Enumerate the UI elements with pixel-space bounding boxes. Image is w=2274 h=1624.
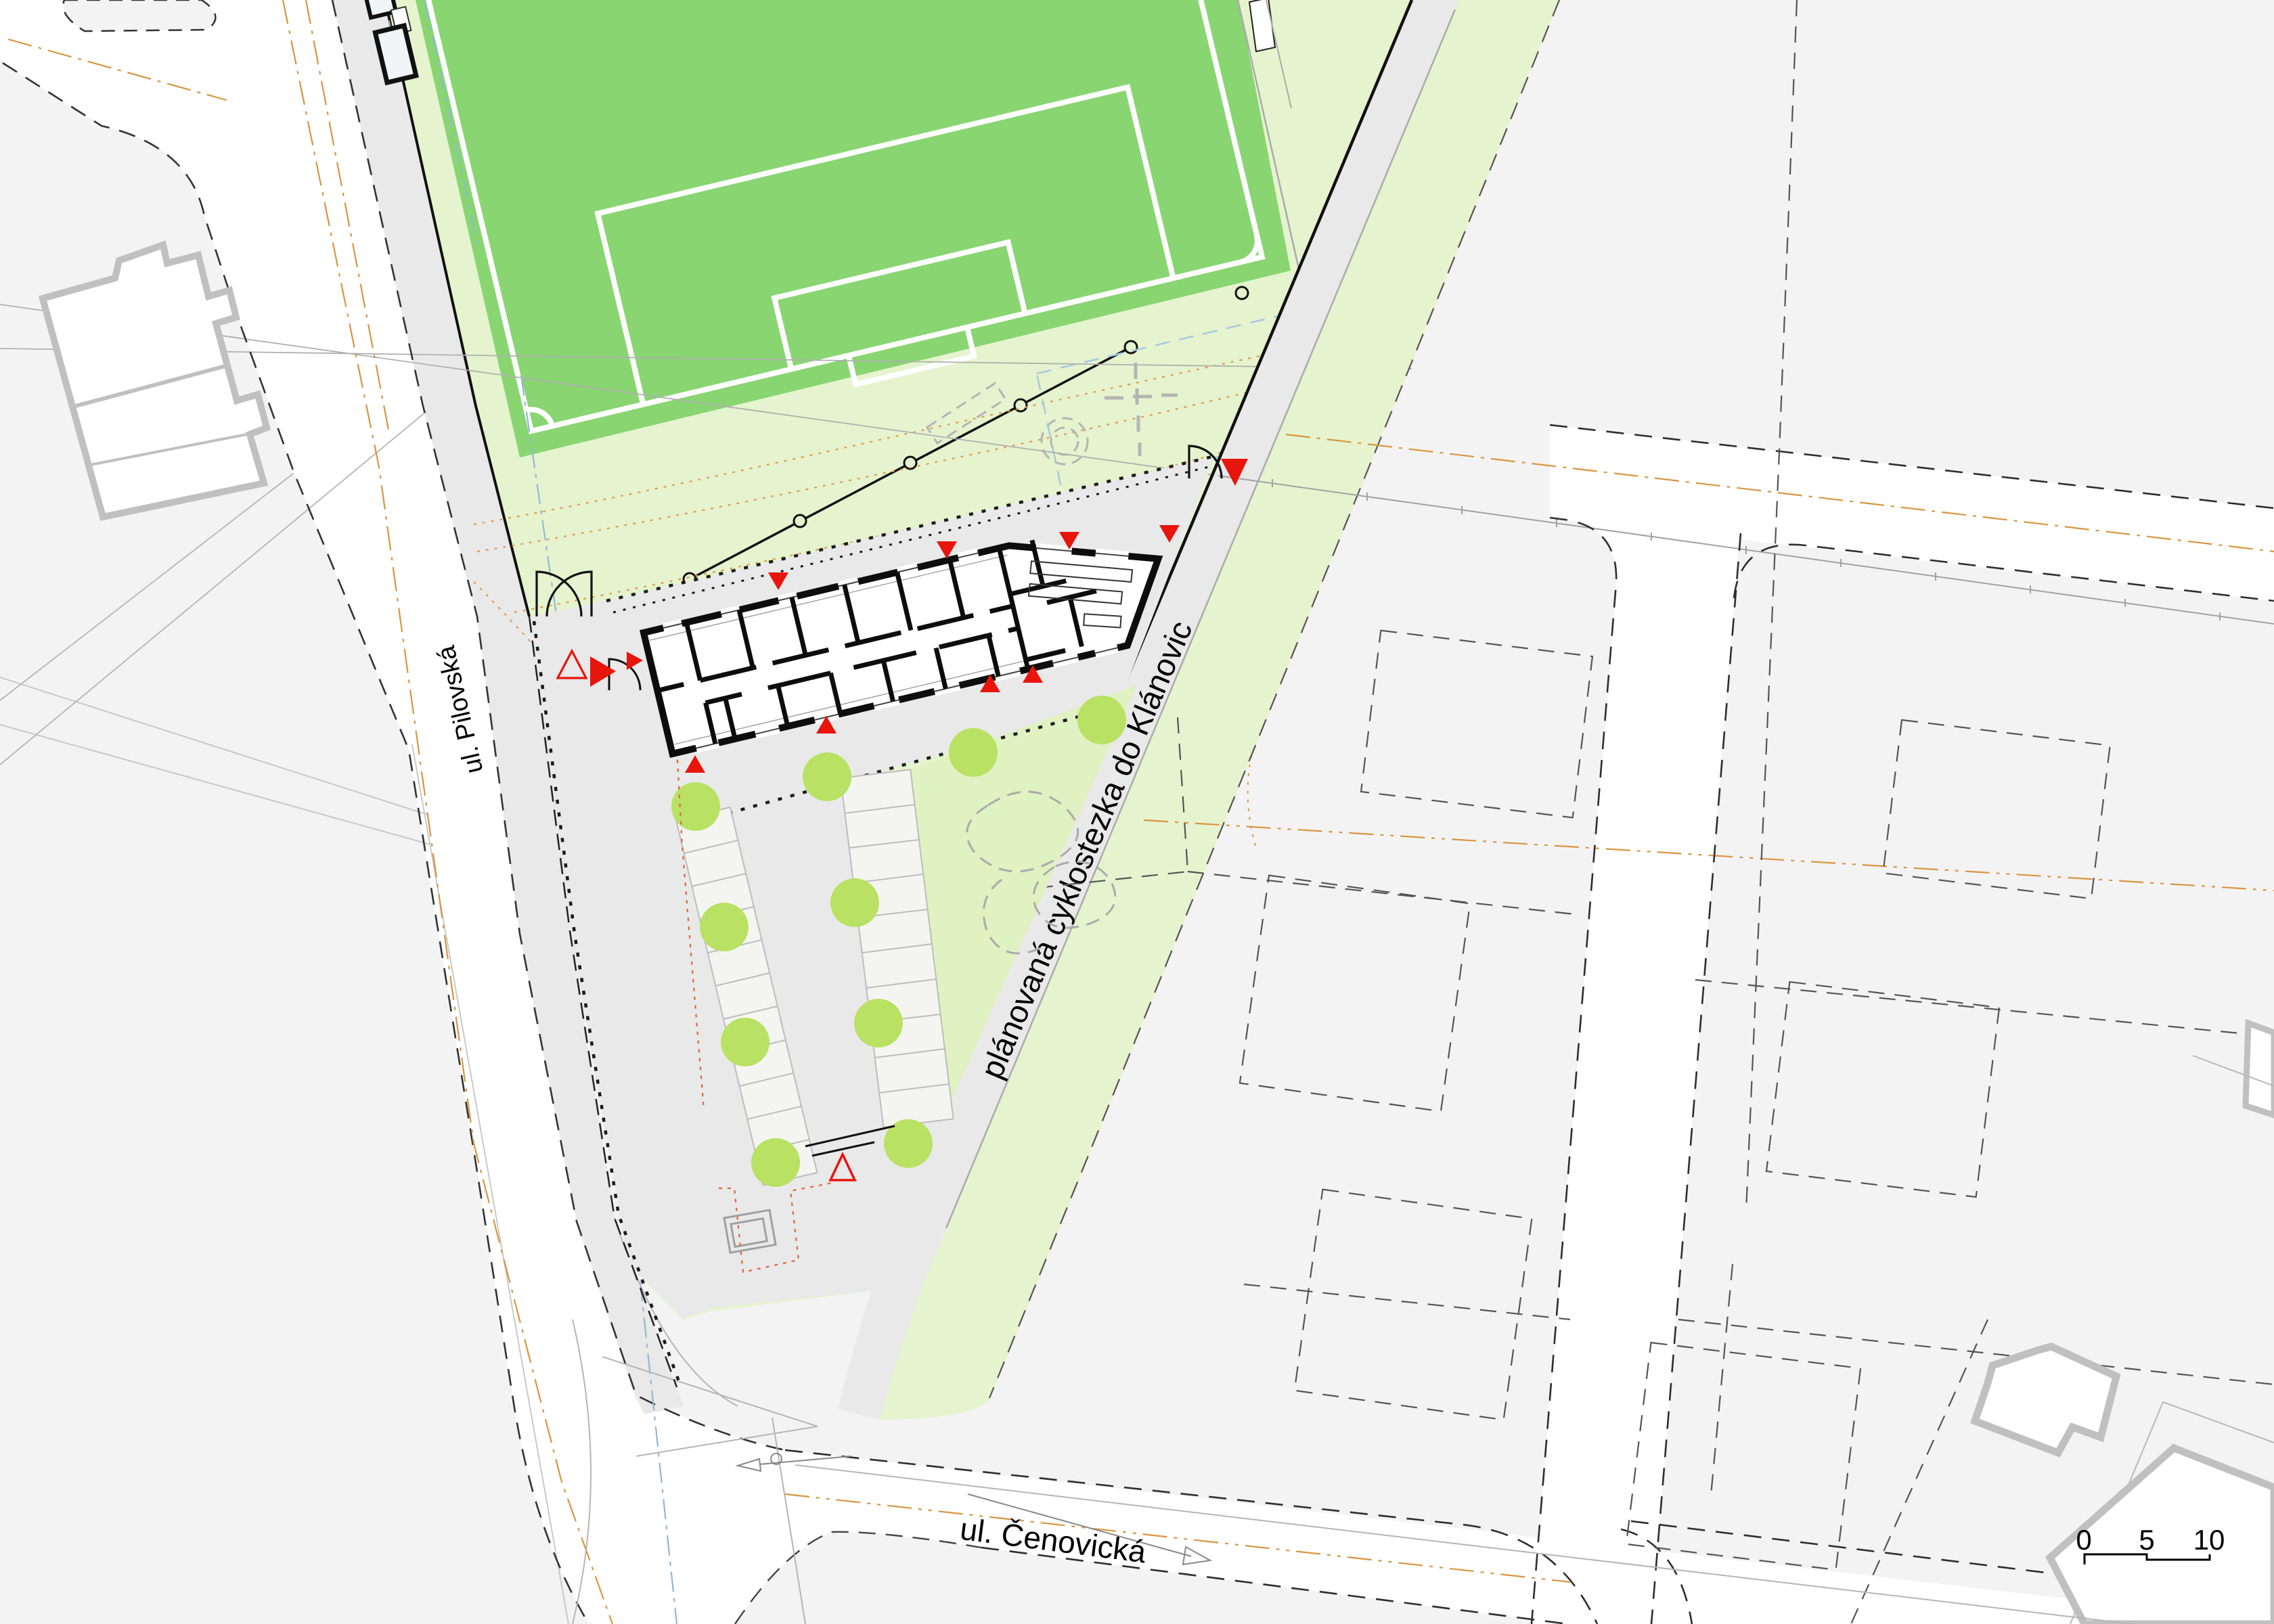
svg-text:10: 10	[2193, 1524, 2225, 1556]
svg-text:0: 0	[2076, 1524, 2091, 1556]
svg-text:5: 5	[2139, 1524, 2154, 1556]
